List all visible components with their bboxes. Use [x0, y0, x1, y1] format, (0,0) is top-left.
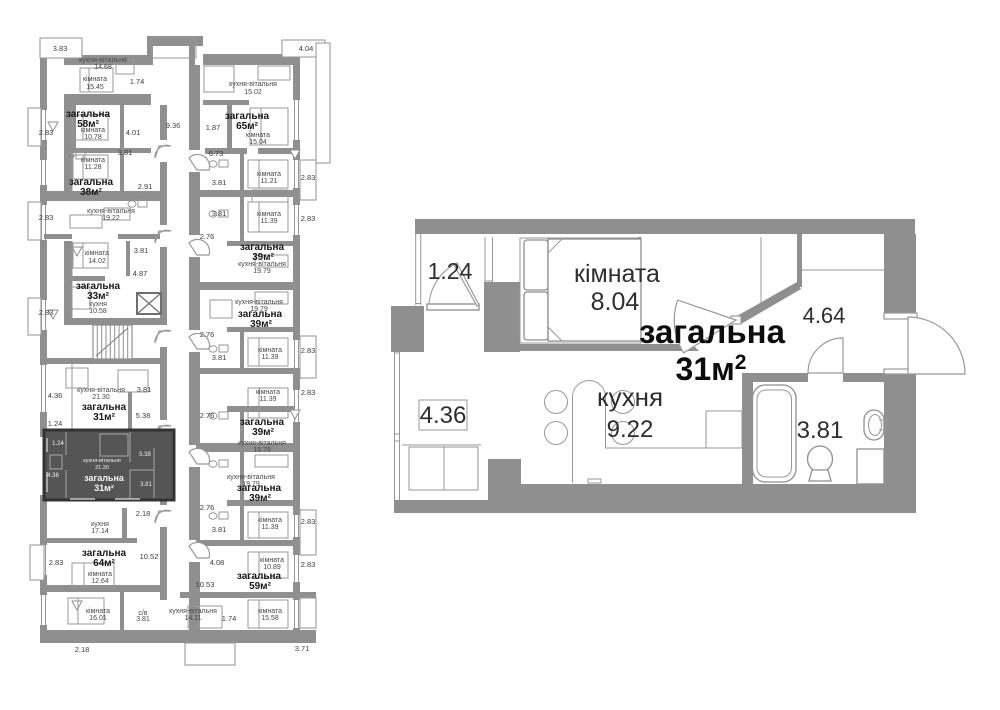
- svg-text:39м²: 39м²: [250, 319, 273, 330]
- svg-text:9.36: 9.36: [166, 121, 181, 130]
- svg-text:кімната: кімната: [83, 75, 107, 83]
- svg-text:кухня-вітальня: кухня-вітальня: [87, 207, 135, 215]
- svg-text:1.74: 1.74: [130, 77, 145, 86]
- svg-text:кімната: кімната: [258, 516, 282, 524]
- svg-text:2.83: 2.83: [49, 558, 64, 567]
- svg-text:2.83: 2.83: [301, 560, 316, 569]
- svg-text:1.24: 1.24: [428, 258, 473, 284]
- svg-text:кімната: кімната: [257, 210, 281, 218]
- svg-text:3.81: 3.81: [136, 616, 150, 623]
- svg-text:10.89: 10.89: [263, 564, 281, 571]
- svg-text:кухня: кухня: [91, 521, 109, 528]
- svg-text:21.30: 21.30: [95, 465, 109, 471]
- svg-text:кухня-вітальня: кухня-вітальня: [169, 607, 217, 615]
- svg-text:кімната: кімната: [85, 249, 109, 257]
- svg-text:кімната: кімната: [258, 607, 282, 615]
- svg-text:4.64: 4.64: [803, 303, 846, 328]
- svg-text:кухня: кухня: [597, 382, 663, 412]
- svg-text:11.39: 11.39: [262, 354, 279, 361]
- svg-text:6.73: 6.73: [209, 149, 224, 158]
- svg-text:15.45: 15.45: [86, 84, 104, 91]
- svg-text:4.36: 4.36: [48, 391, 63, 400]
- svg-text:кімната: кімната: [81, 126, 105, 134]
- svg-text:4.87: 4.87: [133, 269, 148, 278]
- svg-text:кімната: кімната: [256, 388, 280, 396]
- svg-text:кухня-вітальня: кухня-вітальня: [227, 473, 275, 481]
- svg-text:3.81: 3.81: [140, 482, 152, 488]
- svg-text:3.83: 3.83: [53, 44, 68, 53]
- svg-text:2.83: 2.83: [301, 173, 316, 182]
- svg-text:4.08: 4.08: [210, 558, 225, 567]
- svg-text:2.18: 2.18: [75, 645, 90, 654]
- svg-text:кімната: кімната: [258, 346, 282, 354]
- svg-text:14.68: 14.68: [94, 64, 112, 71]
- svg-text:10.78: 10.78: [84, 134, 102, 141]
- svg-text:11.28: 11.28: [85, 164, 102, 171]
- svg-text:3.81: 3.81: [212, 525, 227, 534]
- svg-text:3.81: 3.81: [212, 209, 227, 218]
- svg-text:11.39: 11.39: [262, 524, 279, 531]
- svg-text:17.14: 17.14: [91, 528, 109, 535]
- svg-text:9.22: 9.22: [607, 416, 654, 443]
- svg-text:2.83: 2.83: [301, 517, 316, 526]
- svg-text:21.30: 21.30: [92, 394, 110, 401]
- svg-text:загальна: загальна: [639, 313, 786, 350]
- svg-text:кухня-вітальня: кухня-вітальня: [77, 386, 125, 394]
- svg-text:кухня-вітальня: кухня-вітальня: [238, 260, 286, 268]
- svg-text:16.01: 16.01: [89, 615, 107, 622]
- svg-text:кімната: кімната: [574, 260, 660, 288]
- svg-text:4.36: 4.36: [420, 402, 467, 429]
- svg-text:11.39: 11.39: [261, 218, 278, 225]
- svg-text:15.02: 15.02: [244, 89, 262, 96]
- svg-text:3.81: 3.81: [137, 385, 152, 394]
- svg-text:14.02: 14.02: [88, 258, 106, 265]
- svg-text:кімната: кімната: [260, 556, 284, 564]
- svg-text:2.83: 2.83: [301, 388, 316, 397]
- svg-text:31м²: 31м²: [93, 412, 116, 423]
- svg-text:39м²: 39м²: [252, 427, 275, 438]
- svg-text:кухня-вітальня: кухня-вітальня: [79, 56, 127, 64]
- svg-text:2.83: 2.83: [301, 214, 316, 223]
- svg-text:2.76: 2.76: [200, 503, 215, 512]
- svg-text:кімната: кімната: [86, 607, 110, 615]
- svg-text:19.79: 19.79: [253, 268, 271, 275]
- svg-text:59м²: 59м²: [249, 581, 272, 592]
- svg-text:31м²: 31м²: [94, 483, 114, 493]
- svg-text:кухня-вітальня: кухня-вітальня: [83, 458, 121, 464]
- svg-text:39м²: 39м²: [249, 493, 272, 504]
- svg-text:2.83: 2.83: [39, 213, 54, 222]
- svg-text:3.81: 3.81: [212, 353, 227, 362]
- svg-text:2.83: 2.83: [39, 128, 54, 137]
- svg-text:2.83: 2.83: [301, 346, 316, 355]
- svg-text:3.71: 3.71: [295, 644, 310, 653]
- svg-text:10.58: 10.58: [89, 308, 107, 315]
- svg-text:3.81: 3.81: [212, 178, 227, 187]
- svg-text:2.91: 2.91: [138, 182, 153, 191]
- svg-text:15.58: 15.58: [261, 615, 279, 622]
- svg-text:19.22: 19.22: [102, 215, 120, 222]
- svg-text:5.38: 5.38: [139, 452, 151, 458]
- svg-text:кухня-вітальня: кухня-вітальня: [238, 439, 286, 447]
- svg-text:1.24: 1.24: [48, 419, 63, 428]
- svg-text:2.83: 2.83: [39, 308, 54, 317]
- svg-text:2.76: 2.76: [200, 330, 215, 339]
- svg-text:3.81: 3.81: [134, 246, 149, 255]
- svg-text:1.24: 1.24: [52, 441, 64, 447]
- svg-text:кімната: кімната: [81, 156, 105, 164]
- svg-text:2.76: 2.76: [200, 232, 215, 241]
- svg-text:4.04: 4.04: [299, 44, 314, 53]
- svg-text:2.18: 2.18: [136, 509, 151, 518]
- svg-text:11.39: 11.39: [260, 396, 277, 403]
- svg-text:64м²: 64м²: [93, 558, 116, 569]
- svg-text:4.36: 4.36: [47, 473, 59, 479]
- svg-text:1.74: 1.74: [222, 614, 237, 623]
- svg-text:4.01: 4.01: [126, 128, 141, 137]
- svg-text:кімната: кімната: [88, 570, 112, 578]
- svg-text:10.52: 10.52: [140, 552, 159, 561]
- svg-text:8.04: 8.04: [591, 288, 640, 316]
- svg-text:кімната: кімната: [257, 170, 281, 178]
- svg-text:3.81: 3.81: [797, 417, 844, 444]
- svg-text:11.21: 11.21: [261, 178, 278, 185]
- svg-text:1.87: 1.87: [206, 123, 221, 132]
- svg-text:5.38: 5.38: [136, 411, 151, 420]
- svg-text:кухня: кухня: [89, 301, 107, 308]
- svg-text:кімната: кімната: [246, 131, 270, 139]
- svg-text:12.64: 12.64: [91, 578, 109, 585]
- svg-text:загальна: загальна: [84, 473, 125, 483]
- svg-text:65м²: 65м²: [236, 121, 259, 132]
- svg-text:15.04: 15.04: [249, 139, 267, 146]
- svg-text:38м²: 38м²: [80, 187, 103, 198]
- svg-text:3.81: 3.81: [118, 148, 133, 157]
- svg-text:кухня-вітальня: кухня-вітальня: [235, 298, 283, 306]
- svg-text:19.79: 19.79: [253, 447, 271, 454]
- svg-text:2.76: 2.76: [200, 411, 215, 420]
- svg-text:кухня-вітальня: кухня-вітальня: [229, 80, 277, 88]
- svg-text:10.53: 10.53: [196, 580, 215, 589]
- svg-text:14.11: 14.11: [185, 615, 202, 622]
